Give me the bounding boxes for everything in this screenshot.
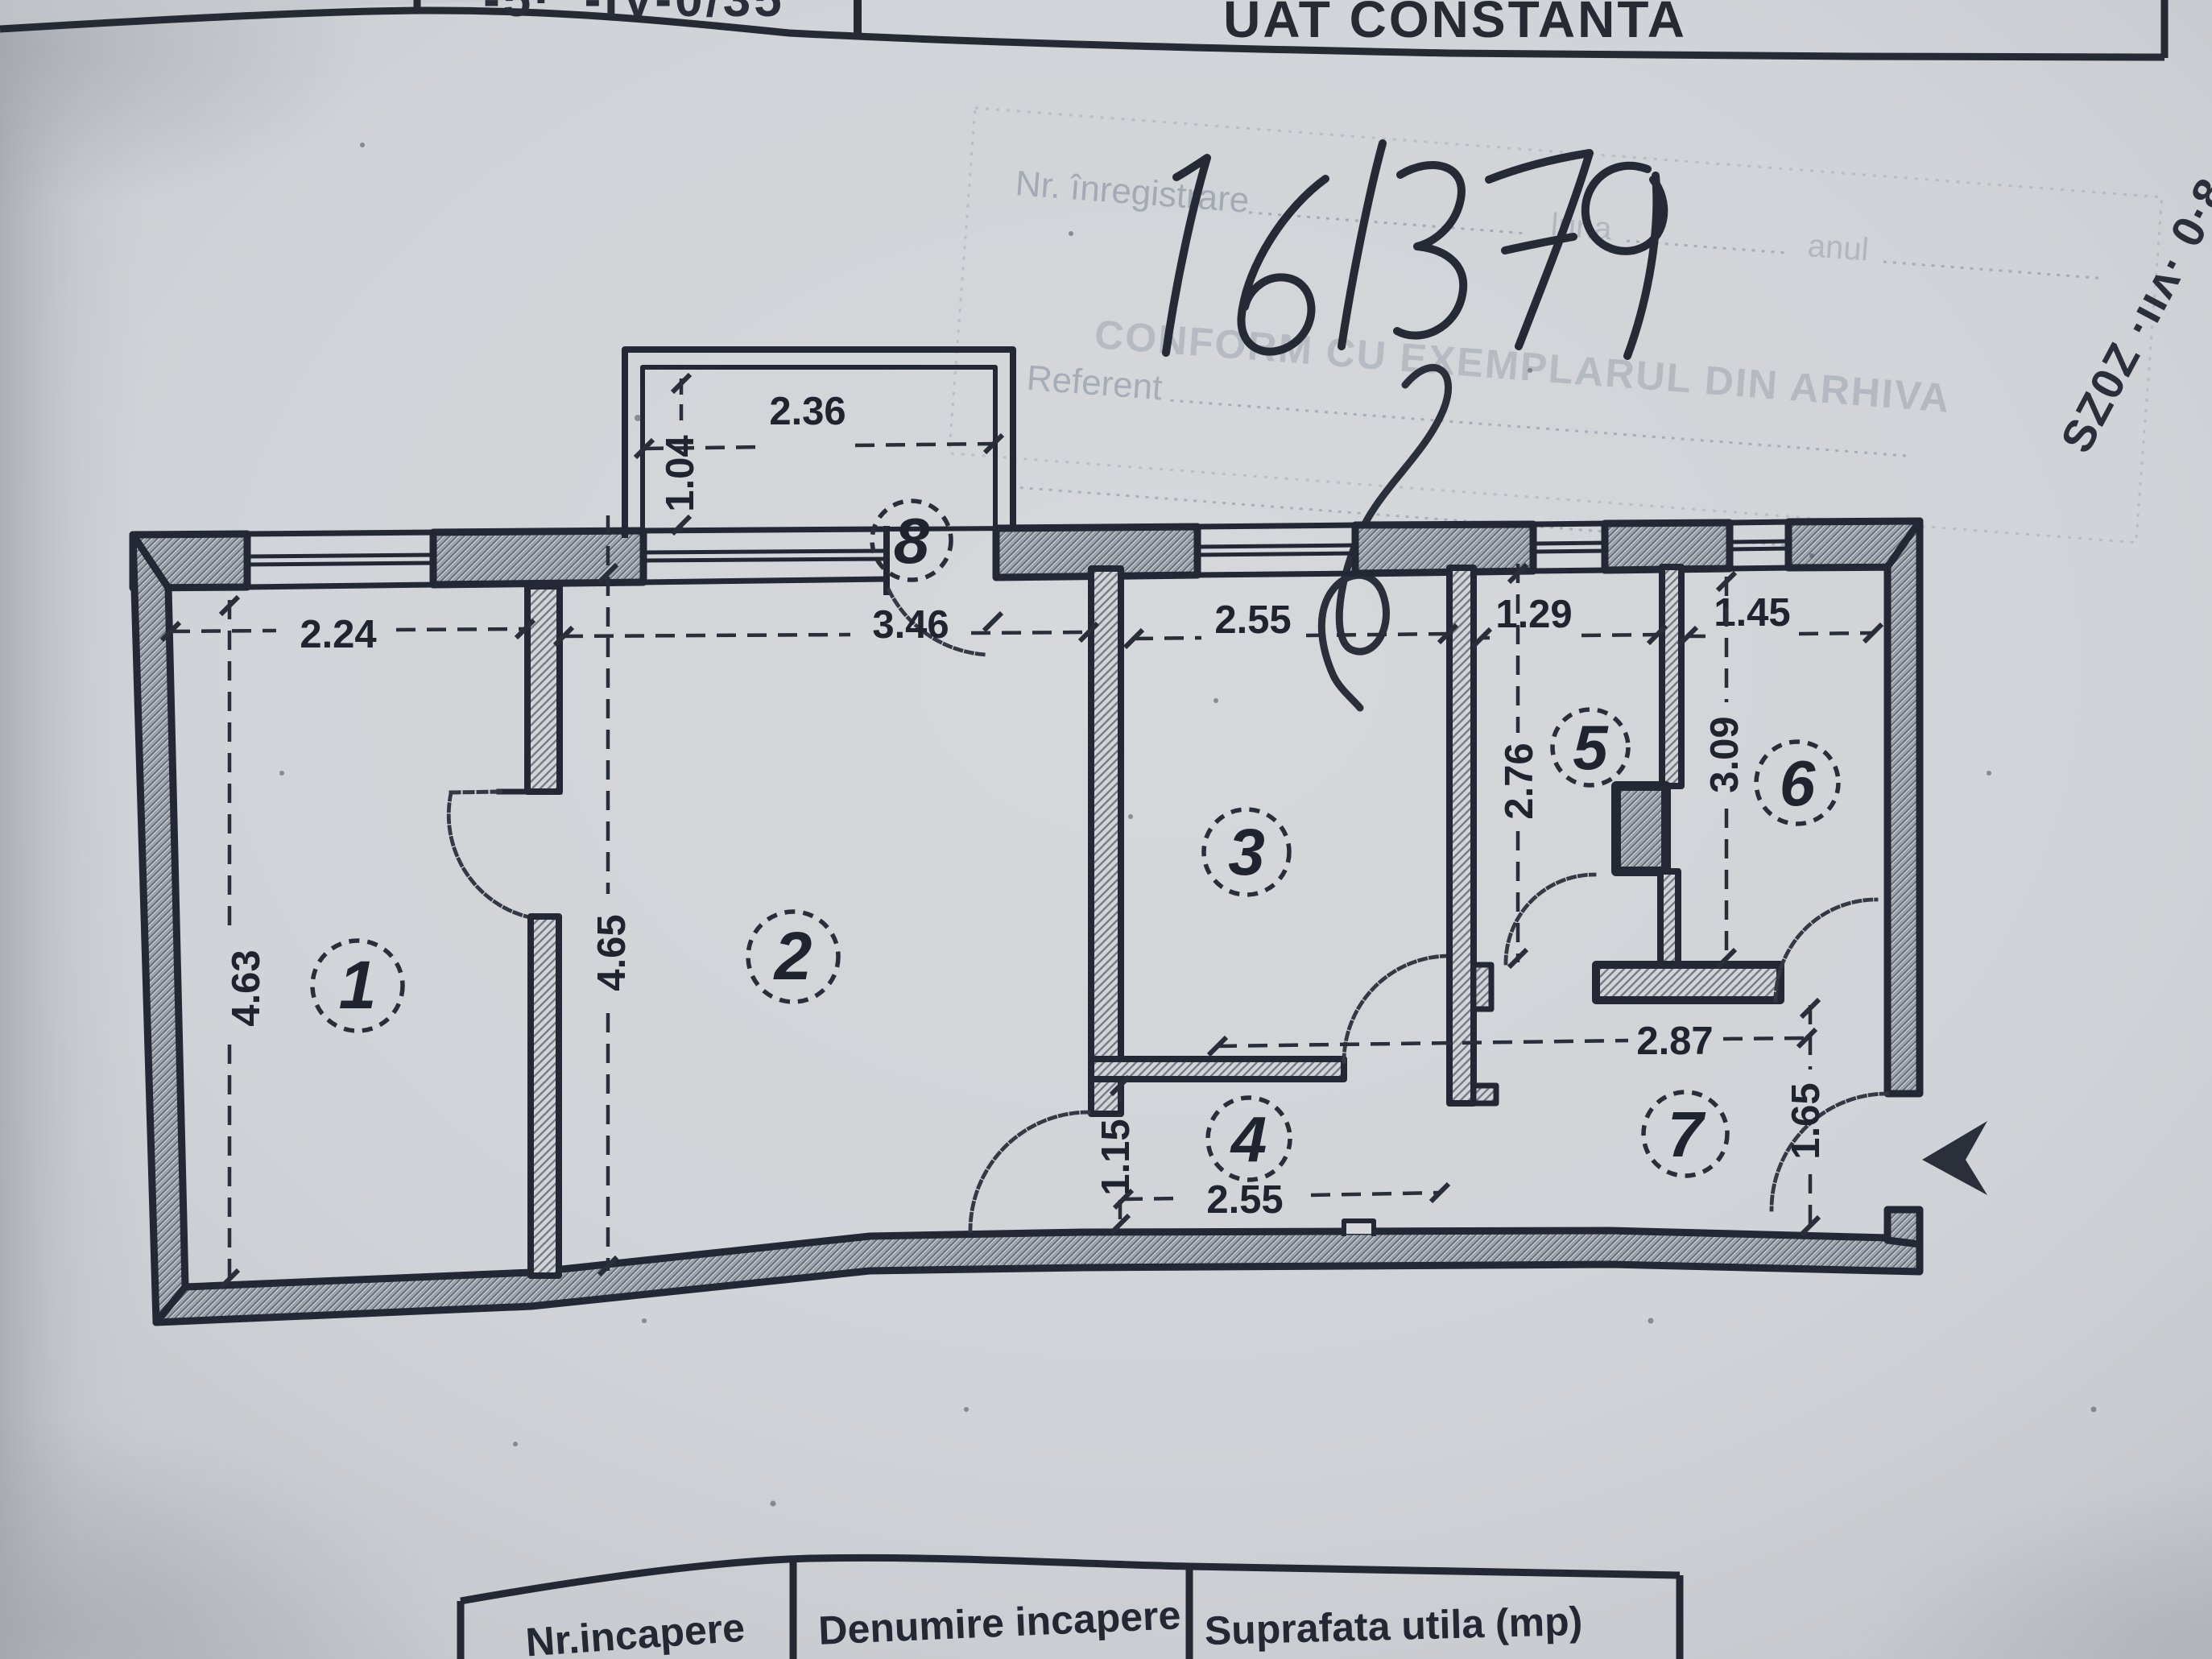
svg-text:4.65: 4.65 (590, 914, 634, 991)
svg-text:1: 1 (339, 947, 377, 1023)
svg-text:4: 4 (1230, 1103, 1267, 1175)
svg-text:8: 8 (894, 505, 930, 577)
svg-text:1.15: 1.15 (1094, 1119, 1138, 1195)
svg-text:2.24: 2.24 (300, 613, 376, 656)
svg-text:6: 6 (1780, 747, 1816, 819)
svg-text:1.65: 1.65 (1784, 1082, 1828, 1159)
svg-text:anul: anul (1806, 228, 1870, 268)
svg-text:4.63: 4.63 (225, 949, 268, 1026)
svg-text:2.76: 2.76 (1498, 743, 1541, 819)
svg-text:1.04: 1.04 (659, 435, 702, 511)
svg-text:3: 3 (1228, 816, 1265, 889)
svg-text:2.55: 2.55 (1214, 598, 1291, 642)
svg-text:2.36: 2.36 (769, 390, 846, 433)
svg-text:3.09: 3.09 (1703, 716, 1747, 792)
svg-text:′-5·′′-IV-0/35: ′-5·′′-IV-0/35 (468, 0, 785, 27)
svg-text:3.46: 3.46 (872, 603, 949, 647)
svg-text:7: 7 (1668, 1098, 1706, 1170)
svg-text:1.29: 1.29 (1495, 593, 1572, 636)
svg-text:5: 5 (1573, 712, 1609, 783)
svg-text:2.87: 2.87 (1636, 1020, 1713, 1063)
svg-text:UAT CONSTANTA: UAT CONSTANTA (1223, 0, 1687, 48)
svg-text:2.55: 2.55 (1206, 1178, 1283, 1222)
svg-text:2: 2 (773, 918, 812, 994)
